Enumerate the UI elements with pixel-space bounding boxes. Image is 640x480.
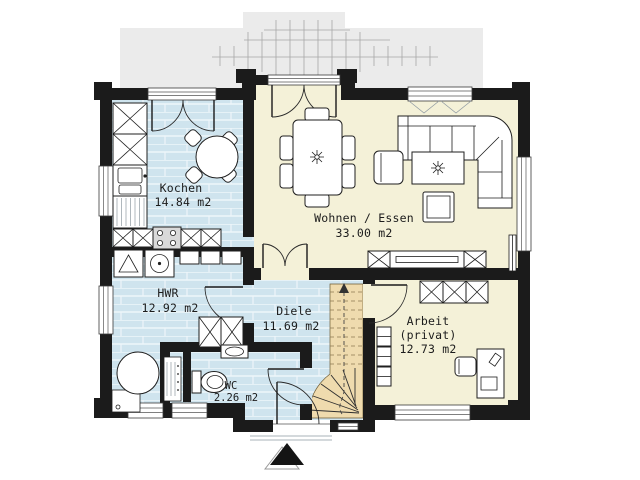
chair-icon (342, 164, 355, 188)
plant-icon (431, 161, 445, 175)
wohnen-area: 33.00 m2 (336, 226, 393, 240)
desk-chair-icon (455, 357, 476, 376)
wardrobe-icon (199, 317, 243, 347)
diele-area: 11.69 m2 (263, 319, 320, 333)
wardrobe-icon (420, 281, 488, 303)
chair-icon (305, 194, 329, 207)
window-icon (99, 286, 113, 334)
window-icon (338, 423, 358, 430)
window-icon (395, 405, 470, 420)
chair-icon (342, 136, 355, 160)
shelf-icon (377, 327, 391, 386)
sideboard-tv-icon (368, 251, 486, 268)
radiator-icon (509, 235, 516, 271)
hwr-area: 12.92 m2 (142, 301, 199, 315)
kochen-area: 14.84 m2 (155, 195, 212, 209)
washbasin-icon (221, 345, 248, 358)
arbeit-area: 12.73 m2 (400, 342, 457, 356)
dishwasher-icon (113, 196, 147, 228)
stove-icon (153, 227, 181, 249)
stool-icon (423, 192, 454, 222)
wc-label: WC (225, 380, 238, 392)
desk-icon (477, 349, 504, 398)
toilet-icon (192, 371, 227, 393)
heating-manifold-icon (164, 357, 181, 401)
arbeit-label: Arbeit (407, 314, 450, 328)
plant-icon (310, 150, 324, 164)
kochen-label: Kochen (160, 181, 203, 195)
floor-plan-page: Kochen 14.84 m2 Wohnen / Essen 33.00 m2 … (0, 0, 640, 480)
floor-plan-canvas: Kochen 14.84 m2 Wohnen / Essen 33.00 m2 … (0, 0, 640, 480)
coffee-table-icon (412, 152, 464, 184)
diele-label: Diele (276, 304, 312, 318)
washing-machine-icon (114, 250, 143, 277)
armchair-icon (374, 151, 403, 184)
window-icon (99, 166, 113, 216)
wc-area: 2.26 m2 (214, 392, 258, 404)
window-icon (517, 157, 531, 251)
terrace-step (243, 12, 345, 28)
chair-icon (280, 136, 293, 160)
hwr-label: HWR (157, 286, 178, 300)
arbeit-qualifier: (privat) (400, 328, 457, 342)
wohnen-label: Wohnen / Essen (314, 211, 414, 225)
kitchen-sink-icon (113, 165, 147, 196)
tumble-dryer-icon (145, 250, 174, 277)
chair-icon (305, 108, 329, 121)
base-cabinet-icon (180, 251, 241, 264)
chair-icon (280, 164, 293, 188)
entrance-arrow-icon (265, 443, 304, 469)
tall-cabinet-icon (113, 103, 147, 165)
